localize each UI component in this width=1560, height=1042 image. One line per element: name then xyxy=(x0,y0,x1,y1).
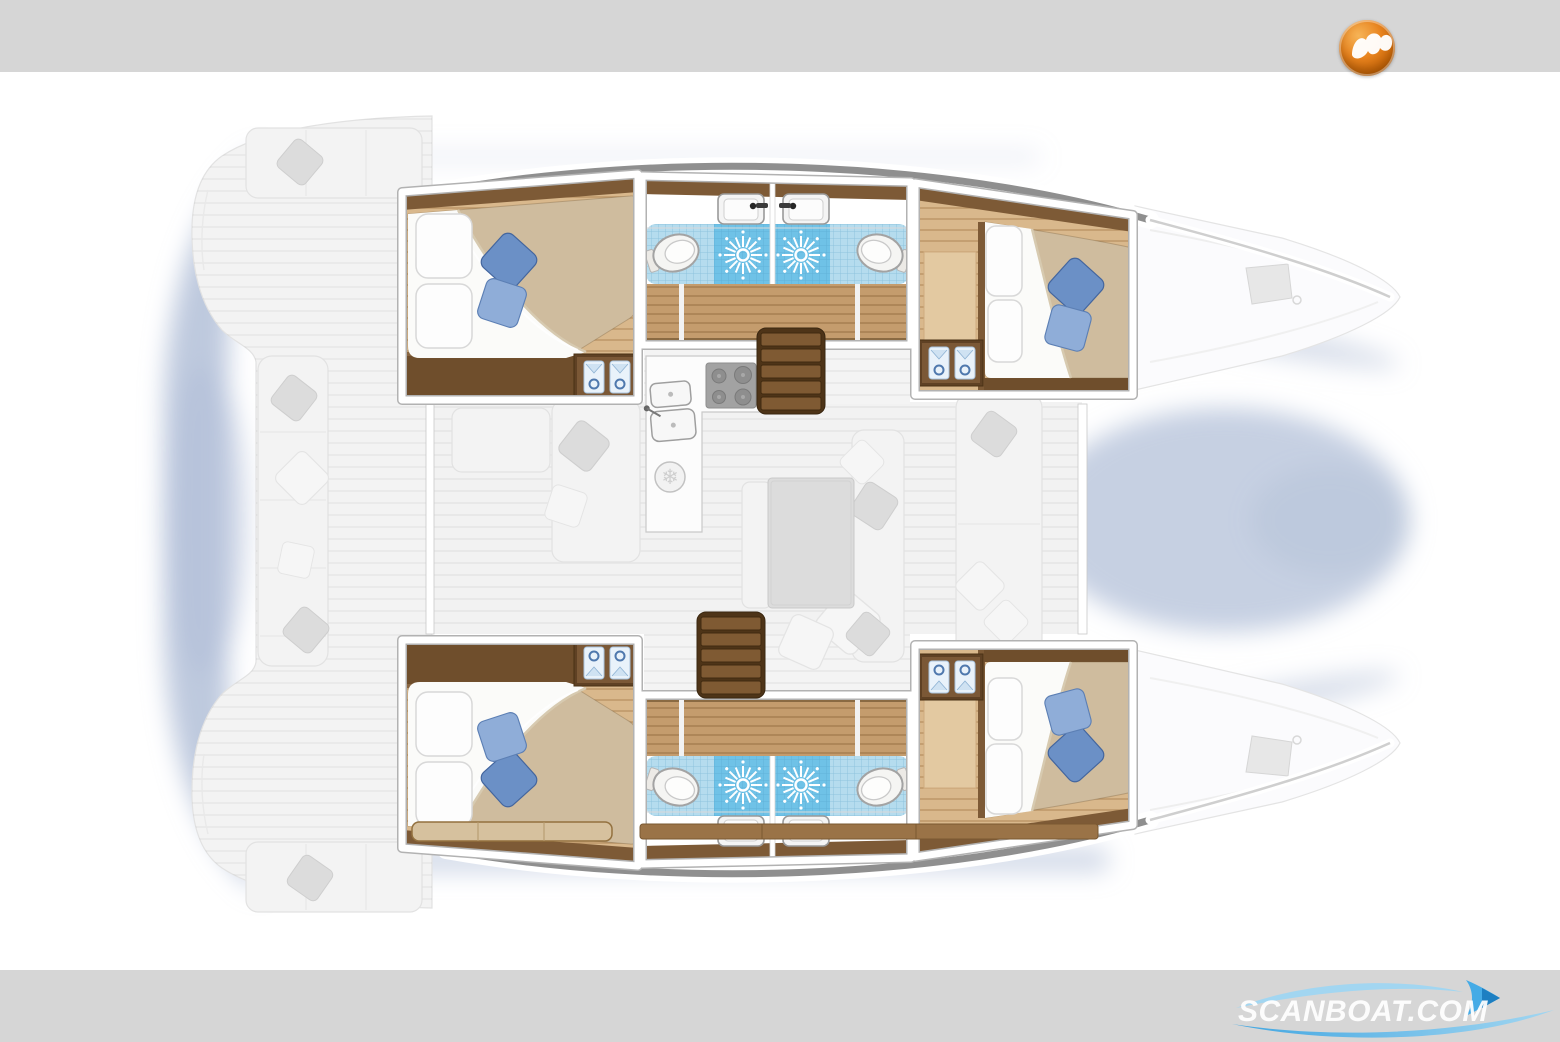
scanboat-orb-logo xyxy=(1339,20,1395,76)
cabin-port-aft xyxy=(402,172,638,400)
double-bed xyxy=(985,222,1133,378)
saloon-table xyxy=(768,478,854,608)
companionway-stairs-starboard xyxy=(697,612,765,698)
basin-icon xyxy=(718,194,764,224)
saloon-chart-seat xyxy=(452,408,550,472)
transom-seat-port xyxy=(246,128,422,198)
forward-cockpit-bench xyxy=(953,392,1042,658)
fridge-icon: ❄ xyxy=(655,462,685,492)
forward-bulkhead xyxy=(1078,404,1087,634)
basin-icon xyxy=(783,194,829,224)
pillow xyxy=(416,284,472,348)
svg-text:❄: ❄ xyxy=(661,466,679,489)
saloon-chaise xyxy=(552,400,640,562)
catamaran-floorplan: ❄ xyxy=(0,0,1560,1040)
pillow xyxy=(986,226,1022,296)
gunwale-helm-seat xyxy=(412,822,1098,841)
scanboat-watermark: SCANBOAT.COM xyxy=(1228,974,1560,1038)
wardrobe xyxy=(574,354,638,400)
scanboat-bird-icon xyxy=(1339,20,1395,76)
watermark-text: SCANBOAT.COM xyxy=(1238,995,1488,1028)
double-bed xyxy=(408,196,638,358)
companionway-stairs-port xyxy=(757,328,825,414)
heads-port xyxy=(642,176,914,346)
saloon-aft-wall xyxy=(426,402,434,634)
wardrobe xyxy=(919,340,983,386)
transom-seat-starboard xyxy=(246,842,422,912)
stove-icon xyxy=(706,363,756,408)
aft-bench xyxy=(258,356,331,666)
pillow xyxy=(988,300,1022,362)
anchor-hatch xyxy=(1246,264,1292,304)
page: { "page": {"width": 1560, "height": 1040… xyxy=(0,0,1560,1040)
pillow xyxy=(416,214,472,278)
